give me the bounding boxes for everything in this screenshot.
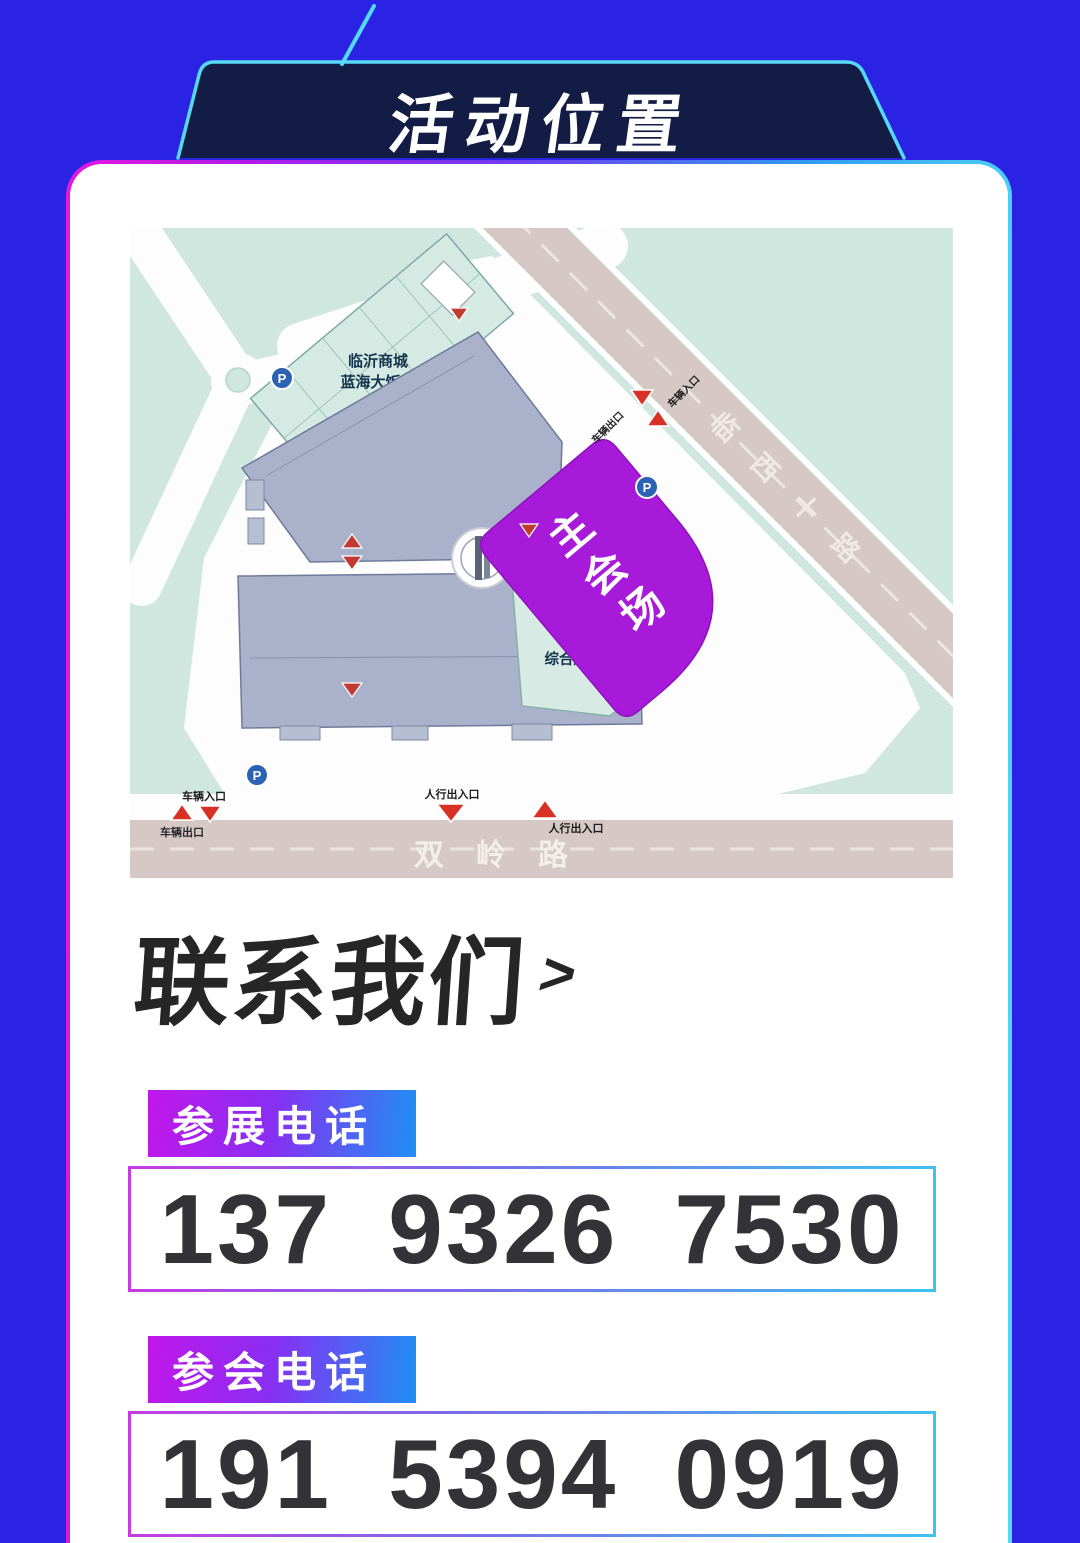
pedestrian-access-label: 人行出入口 bbox=[425, 787, 480, 801]
chevron-right-icon: > bbox=[533, 944, 583, 1004]
banner-accent-slash bbox=[342, 6, 374, 64]
parking-icon: P bbox=[636, 476, 658, 498]
content-card-border: 临西十路 双岭路 bbox=[66, 160, 1012, 1543]
pedestrian-access-label: 人行出入口 bbox=[549, 821, 604, 835]
venue-map: 临西十路 双岭路 bbox=[130, 228, 953, 878]
vehicle-exit-label: 车辆出口 bbox=[160, 825, 204, 839]
hotel-label-line1: 临沂商城 bbox=[348, 352, 408, 370]
svg-text:P: P bbox=[643, 480, 652, 495]
contact-heading-text: 联系我们 bbox=[131, 936, 530, 1032]
attendee-phone-number: 191 5394 0919 bbox=[160, 1418, 905, 1531]
svg-text:P: P bbox=[278, 371, 287, 386]
map-roundabout-island bbox=[226, 368, 250, 392]
parking-icon: P bbox=[246, 764, 268, 786]
page-title: 活动位置 bbox=[174, 74, 911, 166]
exhibition-phone-label: 参展电话 bbox=[148, 1090, 416, 1157]
exhibition-phone-number: 137 9326 7530 bbox=[160, 1173, 905, 1286]
vehicle-entry-label: 车辆入口 bbox=[182, 789, 226, 803]
contact-us-link[interactable]: 联系我们 > bbox=[131, 936, 579, 1032]
venue-map-svg: 临西十路 双岭路 bbox=[130, 228, 953, 878]
poster-page: 活动位置 bbox=[0, 0, 1080, 1543]
attendee-phone-box: 191 5394 0919 bbox=[128, 1411, 936, 1537]
road-bottom-label: 双岭路 bbox=[414, 839, 600, 872]
parking-icon: P bbox=[271, 367, 293, 389]
svg-text:P: P bbox=[253, 768, 262, 783]
content-card: 临西十路 双岭路 bbox=[70, 164, 1008, 1543]
attendee-phone-label: 参会电话 bbox=[148, 1336, 416, 1403]
exhibition-phone-box: 137 9326 7530 bbox=[128, 1166, 936, 1292]
